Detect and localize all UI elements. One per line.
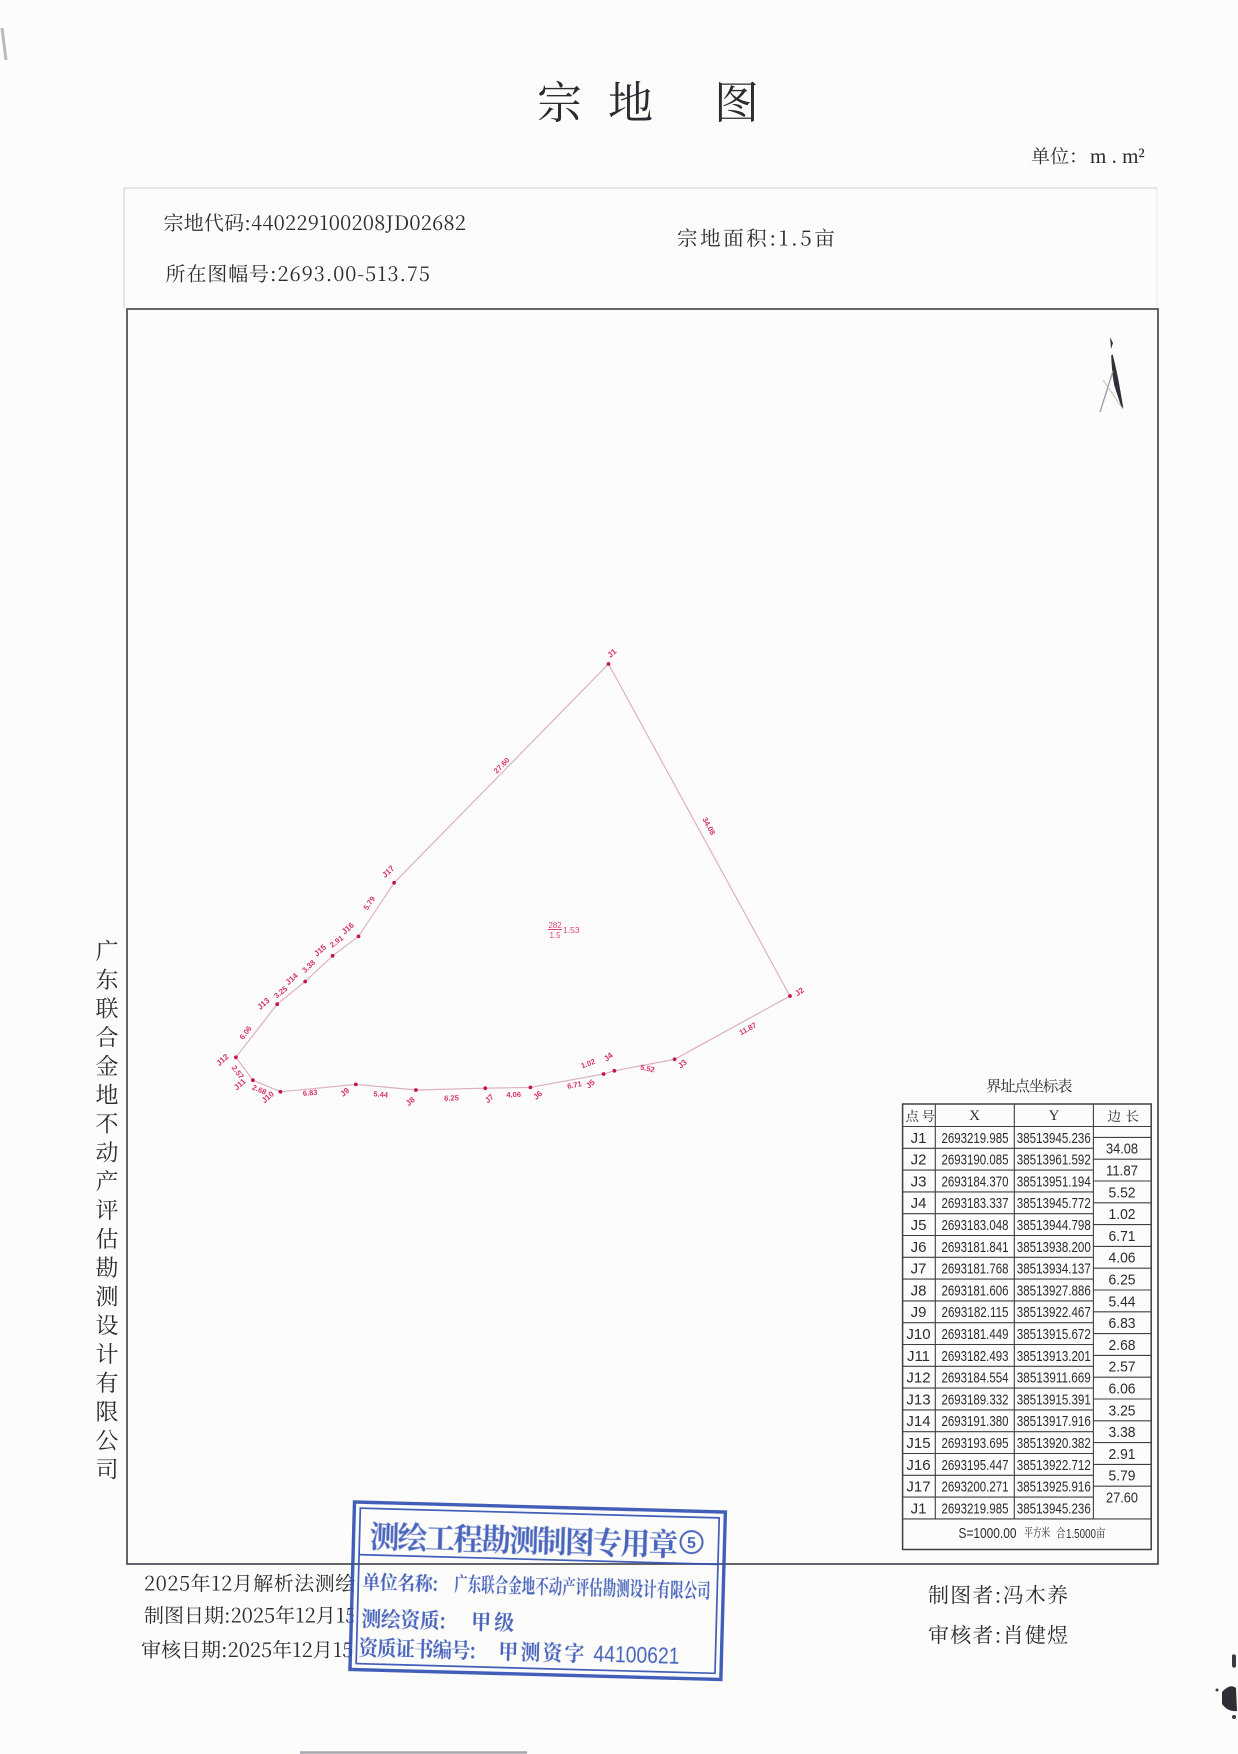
svg-text:J11: J11	[907, 1348, 930, 1365]
svg-text:38513911.669: 38513911.669	[1017, 1370, 1091, 1387]
svg-text:2693219.985: 2693219.985	[942, 1130, 1009, 1147]
svg-text:1.02: 1.02	[1109, 1206, 1136, 1223]
svg-text:J7: J7	[911, 1261, 927, 1278]
svg-text:1.5: 1.5	[549, 931, 561, 940]
svg-text:J6: J6	[911, 1239, 927, 1256]
svg-text:4.06: 4.06	[506, 1090, 521, 1099]
svg-text:J8: J8	[911, 1282, 927, 1299]
svg-text:5: 5	[687, 1535, 696, 1552]
svg-text:38513945.236: 38513945.236	[1017, 1500, 1091, 1517]
svg-text:J16: J16	[906, 1457, 930, 1474]
svg-text:J14: J14	[906, 1413, 930, 1430]
svg-text:2693183.048: 2693183.048	[942, 1217, 1009, 1234]
svg-text:2693190.085: 2693190.085	[942, 1152, 1009, 1169]
svg-text:38513915.672: 38513915.672	[1017, 1326, 1091, 1343]
svg-text:38513951.194: 38513951.194	[1017, 1173, 1091, 1190]
svg-text:J9: J9	[911, 1304, 927, 1321]
svg-text:3.38: 3.38	[1109, 1424, 1136, 1441]
svg-text:6.83: 6.83	[1109, 1315, 1136, 1332]
svg-text:38513944.798: 38513944.798	[1017, 1217, 1091, 1234]
svg-text:5.44: 5.44	[373, 1089, 389, 1099]
svg-text:282: 282	[548, 921, 562, 930]
svg-text:2693191.380: 2693191.380	[942, 1413, 1009, 1430]
svg-text:J1: J1	[911, 1500, 927, 1517]
svg-text:J15: J15	[906, 1435, 930, 1452]
svg-text:5.52: 5.52	[1109, 1184, 1136, 1201]
svg-text:2693184.554: 2693184.554	[942, 1370, 1009, 1387]
svg-text:38513938.200: 38513938.200	[1017, 1239, 1091, 1256]
svg-text:6.06: 6.06	[1109, 1381, 1136, 1398]
svg-text:2693181.768: 2693181.768	[942, 1261, 1009, 1278]
svg-text:2693219.985: 2693219.985	[942, 1500, 1009, 1517]
svg-text:X: X	[969, 1108, 980, 1124]
svg-text:J2: J2	[911, 1152, 927, 1169]
svg-text:2693182.493: 2693182.493	[942, 1348, 1009, 1365]
svg-text:38513917.916: 38513917.916	[1017, 1413, 1091, 1430]
svg-text:2693183.337: 2693183.337	[942, 1195, 1009, 1212]
svg-text:2693193.695: 2693193.695	[942, 1435, 1009, 1452]
svg-text:2.57: 2.57	[1109, 1359, 1136, 1376]
svg-text:5.44: 5.44	[1109, 1293, 1136, 1310]
svg-text:J1: J1	[911, 1130, 927, 1147]
svg-text:3.25: 3.25	[1109, 1402, 1136, 1419]
svg-text:44100621: 44100621	[593, 1641, 680, 1669]
svg-text:38513920.382: 38513920.382	[1017, 1435, 1091, 1452]
svg-text:38513961.592: 38513961.592	[1017, 1152, 1091, 1169]
svg-text:5.79: 5.79	[1109, 1468, 1136, 1485]
svg-text:2693182.115: 2693182.115	[942, 1304, 1009, 1321]
svg-text:6.25: 6.25	[1109, 1272, 1136, 1289]
svg-text:J10: J10	[906, 1326, 930, 1343]
svg-text:J17: J17	[906, 1479, 930, 1496]
svg-text:38513913.201: 38513913.201	[1017, 1348, 1091, 1365]
svg-text:2693200.271: 2693200.271	[942, 1479, 1009, 1496]
svg-text:38513915.391: 38513915.391	[1017, 1391, 1091, 1408]
svg-text:38513922.712: 38513922.712	[1017, 1457, 1091, 1474]
svg-text:2693181.841: 2693181.841	[942, 1239, 1009, 1256]
svg-text:34.08: 34.08	[1106, 1141, 1138, 1158]
svg-text:2693181.449: 2693181.449	[942, 1326, 1009, 1343]
svg-text:J4: J4	[911, 1195, 927, 1212]
svg-text:6.25: 6.25	[444, 1093, 459, 1102]
svg-text:27.60: 27.60	[1106, 1490, 1138, 1507]
svg-text:2693189.332: 2693189.332	[942, 1391, 1009, 1408]
svg-text:2693195.447: 2693195.447	[942, 1457, 1009, 1474]
svg-text:6.71: 6.71	[1109, 1228, 1136, 1245]
svg-text:2.68: 2.68	[1109, 1337, 1136, 1354]
svg-text:38513934.137: 38513934.137	[1017, 1261, 1091, 1278]
svg-text:6.83: 6.83	[302, 1088, 317, 1098]
svg-text:38513922.467: 38513922.467	[1017, 1304, 1091, 1321]
svg-text:2693184.370: 2693184.370	[942, 1173, 1009, 1190]
svg-text:1.53: 1.53	[563, 925, 580, 935]
svg-text:2693181.606: 2693181.606	[942, 1282, 1009, 1299]
svg-text:38513945.772: 38513945.772	[1017, 1195, 1091, 1212]
svg-text:S=1000.00: S=1000.00	[959, 1525, 1017, 1542]
svg-text:38513925.916: 38513925.916	[1017, 1479, 1091, 1496]
svg-text:Y: Y	[1049, 1108, 1060, 1124]
svg-text:J13: J13	[906, 1391, 930, 1408]
svg-text:38513945.236: 38513945.236	[1017, 1130, 1091, 1147]
svg-text:4.06: 4.06	[1109, 1250, 1136, 1267]
svg-text:38513927.886: 38513927.886	[1017, 1282, 1091, 1299]
svg-text:J3: J3	[911, 1173, 927, 1190]
svg-text:1.5000: 1.5000	[1066, 1526, 1096, 1541]
svg-text:J5: J5	[911, 1217, 927, 1234]
svg-text:11.87: 11.87	[1106, 1163, 1138, 1180]
svg-text:2.91: 2.91	[1109, 1446, 1136, 1463]
svg-text:J12: J12	[906, 1370, 930, 1387]
svg-text:m . m²: m . m²	[1090, 144, 1145, 168]
